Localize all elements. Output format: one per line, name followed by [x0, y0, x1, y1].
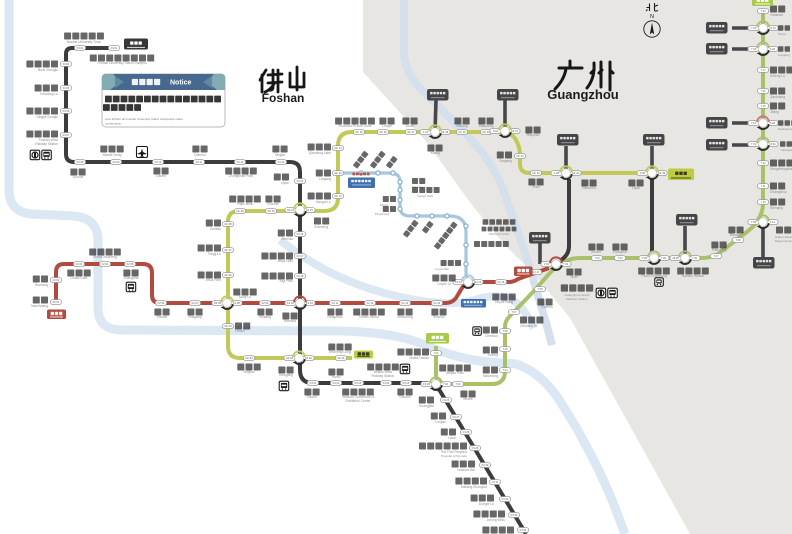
- svg-text:construction.: construction.: [105, 122, 122, 126]
- svg-text:Kefeng Lu: Kefeng Lu: [770, 74, 785, 78]
- svg-text:7 05: 7 05: [661, 256, 667, 260]
- svg-text:7 04: 7 04: [502, 368, 508, 372]
- svg-text:Linyue Dong: Linyue Dong: [495, 300, 514, 304]
- svg-text:7 01: 7 01: [563, 262, 569, 266]
- svg-text:5 28: 5 28: [770, 121, 776, 125]
- svg-text:Hospital of Shunde: Hospital of Shunde: [441, 454, 467, 458]
- svg-text:Beijiao Park: Beijiao Park: [446, 371, 464, 375]
- svg-text:2 08: 2 08: [554, 171, 560, 175]
- svg-text:F2 16: F2 16: [498, 280, 505, 284]
- svg-text:Dunhou: Dunhou: [194, 153, 206, 157]
- svg-text:Jiazhuang: Jiazhuang: [770, 95, 785, 99]
- svg-text:F3 11: F3 11: [196, 160, 203, 164]
- svg-text:Yuangang: Yuangang: [712, 248, 727, 252]
- svg-text:Panxi Changlong: Panxi Changlong: [641, 274, 666, 278]
- svg-text:Shiliang: Shiliang: [259, 315, 271, 319]
- svg-text:7 06: 7 06: [502, 329, 508, 333]
- svg-text:GF 24: GF 24: [572, 171, 580, 175]
- svg-text:7 07: 7 07: [511, 310, 517, 314]
- svg-text:7 17: 7 17: [760, 68, 766, 72]
- svg-text:7 05: 7 05: [502, 347, 508, 351]
- svg-text:Shijilian: Shijilian: [243, 370, 255, 374]
- svg-text:GF 16: GF 16: [379, 130, 387, 134]
- svg-text:NH 10: NH 10: [474, 280, 482, 284]
- svg-text:Flower World: Flower World: [359, 315, 379, 319]
- svg-text:Xilang: Xilang: [430, 151, 439, 155]
- svg-text:7 13: 7 13: [751, 142, 757, 146]
- svg-text:Tongji Lu: Tongji Lu: [208, 252, 221, 256]
- svg-text:Xiyue: Xiyue: [281, 181, 289, 185]
- svg-text:Leigang: Leigang: [319, 177, 331, 181]
- svg-text:Railway Station: Railway Station: [372, 374, 395, 378]
- svg-text:Foshan: Foshan: [262, 91, 305, 105]
- svg-text:F2 04: F2 04: [102, 262, 109, 266]
- svg-text:1 01: 1 01: [423, 130, 429, 134]
- svg-text:GF 21: GF 21: [511, 129, 519, 133]
- svg-text:Zumiao: Zumiao: [210, 227, 221, 231]
- svg-text:Kuiqi Lu: Kuiqi Lu: [239, 295, 251, 299]
- svg-text:Diejiao: Diejiao: [275, 153, 285, 157]
- svg-text:Dengzhou: Dengzhou: [327, 315, 342, 319]
- svg-text:7 08: 7 08: [537, 287, 543, 291]
- svg-text:F3 09: F3 09: [113, 160, 120, 164]
- svg-text:Nanhai University Town: Nanhai University Town: [67, 40, 102, 44]
- svg-text:F3 04: F3 04: [63, 62, 70, 66]
- svg-text:Nanchong: Nanchong: [483, 374, 498, 378]
- svg-text:Midea: Midea: [464, 397, 473, 401]
- svg-text:8 01: 8 01: [493, 129, 499, 133]
- svg-text:F3 25: F3 25: [403, 381, 410, 385]
- svg-text:GF 09: GF 09: [236, 209, 244, 213]
- svg-text:7 20: 7 20: [760, 9, 766, 13]
- svg-text:Dongle Lu: Dongle Lu: [479, 502, 494, 506]
- svg-text:F3 17: F3 17: [297, 254, 304, 258]
- svg-text:Yangang: Yangang: [499, 159, 512, 163]
- svg-text:Hedong: Hedong: [456, 124, 468, 128]
- svg-text:Shibi: Shibi: [570, 275, 578, 279]
- svg-text:Jurong Beilu: Jurong Beilu: [487, 518, 505, 522]
- svg-text:F3 10: F3 10: [155, 160, 162, 164]
- svg-text:Lianhe: Lianhe: [156, 174, 166, 178]
- svg-text:Lanshi: Lanshi: [235, 329, 245, 333]
- svg-text:F3 07: F3 07: [63, 133, 70, 137]
- svg-text:GF 03: GF 03: [245, 356, 253, 360]
- svg-text:F3 24: F3 24: [383, 381, 390, 385]
- svg-text:GF 25: GF 25: [658, 171, 666, 175]
- svg-text:13 01: 13 01: [769, 142, 776, 146]
- svg-text:F3 32: F3 32: [502, 497, 509, 501]
- svg-text:4 12: 4 12: [770, 220, 776, 224]
- svg-text:Dadun: Dadun: [307, 395, 317, 399]
- svg-text:N: N: [650, 14, 654, 20]
- svg-text:Zhen'an: Zhen'an: [281, 237, 293, 241]
- svg-text:7 03: 7 03: [594, 256, 600, 260]
- svg-text:Nanzhuang: Nanzhuang: [31, 304, 48, 308]
- svg-text:Zhongshan Park: Zhongshan Park: [229, 174, 254, 178]
- svg-text:Xingye Donglu: Xingye Donglu: [37, 115, 59, 119]
- svg-text:GF 17: GF 17: [407, 130, 415, 134]
- svg-text:F3 01: F3 01: [111, 46, 118, 50]
- svg-text:Exhibition Center: Exhibition Center: [345, 399, 371, 403]
- svg-text:3 06: 3 06: [640, 171, 646, 175]
- svg-text:Chao'an: Chao'an: [267, 202, 279, 206]
- svg-text:7 08: 7 08: [735, 238, 741, 242]
- svg-text:GF 12: GF 12: [334, 194, 342, 198]
- svg-text:Jitang: Jitang: [770, 110, 779, 114]
- svg-text:F3 23: F3 23: [355, 381, 362, 385]
- svg-text:7 16: 7 16: [760, 89, 766, 93]
- svg-text:Lvdao Lake: Lvdao Lake: [70, 276, 87, 280]
- svg-text:GF 01: GF 01: [337, 356, 345, 360]
- svg-text:Wanhua: Wanhua: [284, 319, 296, 323]
- svg-text:F3 31: F3 31: [492, 480, 499, 484]
- svg-text:GF 23: GF 23: [532, 171, 540, 175]
- svg-text:Nangui Lu: Nangui Lu: [316, 200, 331, 204]
- svg-text:Shuixi: Shuixi: [778, 32, 787, 36]
- svg-text:7 09: 7 09: [751, 220, 757, 224]
- svg-text:Wenhanhu Park: Wenhanhu Park: [489, 232, 510, 236]
- svg-text:Luogang: Luogang: [778, 53, 790, 57]
- svg-text:Xianchong: Xianchong: [397, 315, 413, 319]
- svg-text:Shachong: Shachong: [479, 124, 494, 128]
- svg-text:F2 01: F2 01: [53, 300, 60, 304]
- svg-text:GF 18: GF 18: [441, 130, 449, 134]
- svg-text:Midea Dadao: Midea Dadao: [409, 356, 429, 360]
- svg-text:GF 06: GF 06: [224, 273, 232, 277]
- svg-text:Dongping: Dongping: [279, 373, 293, 377]
- svg-text:Zhihui Xincheng: Zhihui Xincheng: [93, 255, 117, 259]
- svg-text:Changzhou: Changzhou: [770, 190, 787, 194]
- svg-text:Railway Station: Railway Station: [35, 142, 58, 146]
- svg-text:F3 13: F3 13: [278, 160, 285, 164]
- svg-text:7 02: 7 02: [443, 382, 449, 386]
- svg-text:F2 03: F2 03: [76, 262, 83, 266]
- svg-text:Nanzhou: Nanzhou: [582, 186, 595, 190]
- svg-text:Huchong: Huchong: [35, 283, 48, 287]
- svg-text:7 19: 7 19: [751, 26, 757, 30]
- svg-text:F2 11: F2 11: [332, 301, 339, 305]
- svg-text:F2 06: F2 06: [158, 301, 165, 305]
- svg-text:Nancun Wanbo: Nancun Wanbo: [682, 274, 705, 278]
- svg-text:F2 14: F2 14: [434, 301, 441, 305]
- svg-text:Shizhou: Shizhou: [433, 315, 445, 319]
- svg-text:Yuebu: Yuebu: [331, 375, 341, 379]
- svg-text:Yanshan: Yanshan: [770, 13, 783, 17]
- svg-text:F2 08: F2 08: [233, 301, 240, 305]
- svg-text:7 15: 7 15: [760, 104, 766, 108]
- svg-text:F3 08: F3 08: [77, 160, 84, 164]
- svg-text:Luocun: Luocun: [73, 175, 84, 179]
- svg-text:Lijiao: Lijiao: [632, 186, 640, 190]
- svg-text:Chencun: Chencun: [485, 334, 498, 338]
- svg-text:F3 05: F3 05: [63, 86, 70, 90]
- svg-text:F3 34: F3 34: [520, 528, 527, 532]
- svg-text:GF 13: GF 13: [334, 171, 342, 175]
- svg-text:Huanshi Bei: Huanshi Bei: [457, 468, 475, 472]
- svg-text:7 11: 7 11: [761, 184, 766, 188]
- svg-text:Guicheng: Guicheng: [314, 225, 328, 229]
- svg-text:F3 12: F3 12: [237, 160, 244, 164]
- svg-text:F2 09: F2 09: [262, 301, 269, 305]
- svg-text:Line 3(Zhen an-Foshan Universi: Line 3(Zhen an-Foshan University Xianxi …: [105, 117, 183, 121]
- svg-text:Linyue Bei: Linyue Bei: [435, 267, 449, 271]
- svg-text:7 12: 7 12: [760, 161, 766, 165]
- svg-text:F3 15: F3 15: [306, 208, 313, 212]
- svg-text:GF 22: GF 22: [516, 154, 524, 158]
- svg-text:Xiaode Dong: Xiaode Dong: [102, 153, 121, 157]
- svg-text:Jihua Park: Jihua Park: [205, 278, 221, 282]
- svg-text:Banqiao: Banqiao: [730, 233, 742, 237]
- svg-text:F2 05: F2 05: [127, 262, 134, 266]
- svg-text:F2 17: F2 17: [533, 270, 540, 274]
- svg-text:F3 06: F3 06: [63, 109, 70, 113]
- svg-text:F3 28: F3 28: [463, 430, 470, 434]
- svg-text:F3 30: F3 30: [482, 463, 489, 467]
- svg-text:7 10: 7 10: [760, 200, 766, 204]
- svg-text:Jushu: Jushu: [406, 124, 415, 128]
- svg-text:F3 18: F3 18: [297, 274, 304, 278]
- svg-text:GF 19: GF 19: [458, 130, 466, 134]
- svg-text:F3 20: F3 20: [305, 356, 312, 360]
- svg-text:F2 02: F2 02: [53, 278, 60, 282]
- svg-text:F3 29: F3 29: [472, 446, 479, 450]
- svg-text:Bo'ai Zhonglu: Bo'ai Zhonglu: [38, 68, 58, 72]
- svg-text:Shixi: Shixi: [532, 185, 539, 189]
- svg-text:F2 13: F2 13: [402, 301, 409, 305]
- svg-text:Linyue Xi: Linyue Xi: [437, 282, 451, 286]
- svg-text:Dazhou: Dazhou: [541, 305, 553, 309]
- svg-text:GF 20: GF 20: [482, 130, 490, 134]
- svg-text:F2 12: F2 12: [367, 301, 374, 305]
- svg-text:GF 07: GF 07: [224, 248, 232, 252]
- svg-text:Longxi: Longxi: [382, 124, 392, 128]
- svg-text:Zhangcha: Zhangcha: [124, 276, 139, 280]
- svg-text:Daliang Zhonglou: Daliang Zhonglou: [461, 485, 487, 489]
- svg-text:Gaocun: Gaocun: [399, 395, 411, 399]
- svg-text:Pingsheng: Pingsheng: [375, 212, 390, 216]
- svg-text:Xincheng Dong: Xincheng Dong: [329, 350, 352, 354]
- svg-text:Shenjing: Shenjing: [770, 206, 783, 210]
- svg-text:F3 19: F3 19: [306, 301, 313, 305]
- svg-text:Kesheng Lu: Kesheng Lu: [40, 92, 58, 96]
- svg-text:F3 27: F3 27: [453, 415, 460, 419]
- svg-text:Qiandeng Lake: Qiandeng Lake: [309, 151, 332, 155]
- svg-text:7 06: 7 06: [692, 256, 698, 260]
- svg-text:Dashadong: Dashadong: [778, 127, 792, 131]
- svg-text:GF 14: GF 14: [334, 146, 342, 150]
- svg-text:Zhongcun: Zhongcun: [613, 250, 628, 254]
- svg-text:Foshan University Xianxi Campu: Foshan University Xianxi Campus: [97, 61, 147, 65]
- svg-text:Jihua Liulu: Jihua Liulu: [277, 259, 293, 263]
- svg-text:Xiecun: Xiecun: [591, 250, 601, 254]
- svg-text:F3 02: F3 02: [77, 46, 84, 50]
- svg-text:Shagang: Shagang: [188, 315, 201, 319]
- svg-text:Yayi Park: Yayi Park: [279, 279, 293, 283]
- svg-text:Guangzhou: Guangzhou: [547, 87, 619, 102]
- svg-text:7 04: 7 04: [617, 256, 623, 260]
- svg-text:3 09: 3 09: [642, 256, 648, 260]
- svg-text:Financial Hi-tech Zone: Financial Hi-tech Zone: [339, 124, 372, 128]
- svg-text:GF 10: GF 10: [267, 209, 275, 213]
- svg-text:F3 14: F3 14: [297, 179, 304, 183]
- svg-text:F2 07: F2 07: [192, 301, 199, 305]
- svg-text:GF 15: GF 15: [355, 130, 363, 134]
- svg-text:GF 08: GF 08: [224, 222, 232, 226]
- svg-text:7 18: 7 18: [751, 47, 757, 51]
- svg-text:Lunjiao: Lunjiao: [435, 420, 446, 424]
- svg-text:F3 22: F3 22: [333, 381, 340, 385]
- svg-text:2 16: 2 16: [544, 262, 550, 266]
- svg-text:F3 33: F3 33: [511, 513, 518, 517]
- svg-text:F3 21: F3 21: [310, 381, 317, 385]
- svg-text:Yufengwei: Yufengwei: [780, 148, 792, 152]
- svg-text:Hongshengsha: Hongshengsha: [770, 167, 792, 171]
- svg-text:F3 26: F3 26: [443, 398, 450, 402]
- svg-text:F3 16: F3 16: [297, 232, 304, 236]
- svg-text:7 01: 7 01: [433, 351, 439, 355]
- svg-text:Mega Center: Mega Center: [775, 239, 792, 243]
- svg-text:Shiwan: Shiwan: [157, 315, 168, 319]
- svg-text:21 01: 21 01: [769, 26, 776, 30]
- svg-text:Chencun N: Chencun N: [520, 324, 537, 328]
- svg-text:Licun: Licun: [448, 436, 456, 440]
- svg-text:7 14: 7 14: [751, 121, 757, 125]
- svg-text:7 02: 7 02: [455, 382, 461, 386]
- svg-text:6 26: 6 26: [770, 47, 776, 51]
- svg-text:7 07: 7 07: [713, 254, 719, 258]
- svg-text:GF 04: GF 04: [224, 324, 232, 328]
- svg-text:Railway Station: Railway Station: [566, 297, 588, 301]
- svg-text:Jinlong: Jinlong: [488, 353, 499, 357]
- svg-text:Kangyi Park: Kangyi Park: [417, 194, 434, 198]
- svg-text:Shayuan: Shayuan: [526, 133, 539, 137]
- svg-text:Notice: Notice: [170, 80, 192, 87]
- svg-text:Guangjiao: Guangjiao: [419, 404, 434, 408]
- svg-text:Pujun Beilu: Pujun Beilu: [237, 202, 254, 206]
